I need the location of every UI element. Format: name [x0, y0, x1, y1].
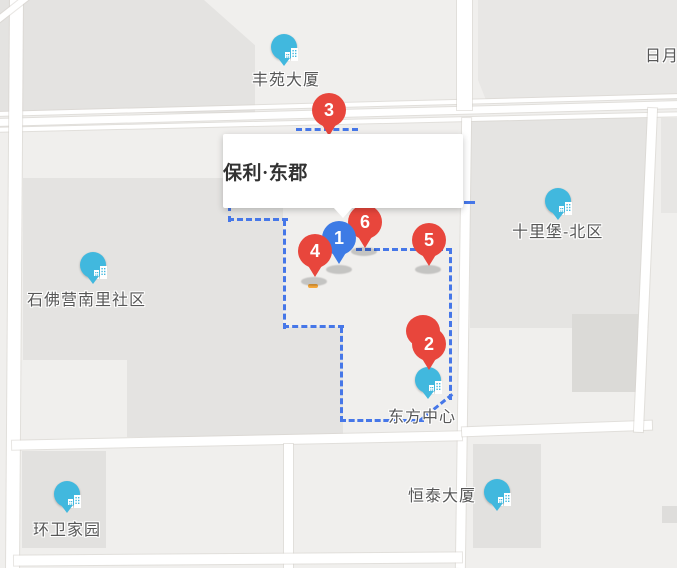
- poi-label-dongfang: 东方中心: [388, 403, 456, 427]
- road-center-vertical-top: [457, 0, 472, 110]
- poi-dongfang-center[interactable]: [415, 367, 441, 393]
- boundary-dash-jog: [283, 325, 344, 328]
- block-top-left: [0, 0, 255, 113]
- pin-number: 5: [424, 230, 434, 250]
- pin-number: 2: [424, 334, 434, 354]
- road-sw-vertical: [284, 444, 293, 568]
- boundary-dash-east: [449, 248, 452, 400]
- block-right-strip: [661, 118, 677, 213]
- road-south-east: [462, 421, 652, 437]
- poi-huanwei-homes[interactable]: [54, 481, 80, 507]
- info-window-title: 保利·东郡: [223, 158, 308, 185]
- block-mid-extension: [283, 327, 343, 437]
- pin-number: 1: [334, 228, 344, 248]
- pin-shadow: [351, 247, 377, 256]
- road-bottom: [14, 552, 462, 565]
- poi-label-hengtai: 恒泰大厦: [408, 482, 476, 506]
- pin-shadow: [301, 277, 327, 286]
- road-left-vertical: [6, 0, 23, 568]
- poi-label-shilipu: 十里堡-北区: [512, 218, 603, 242]
- poi-shilipu-north[interactable]: [545, 188, 571, 214]
- pin-number: 3: [324, 100, 334, 120]
- pin-shadow: [326, 265, 352, 274]
- block-mid-left-light: [23, 360, 127, 437]
- boundary-dash-west2: [340, 327, 343, 422]
- map-canvas[interactable]: 丰苑大厦 十里堡-北区 石佛营南里社区 东方中心 恒泰大厦 环卫家园 日月: [0, 0, 677, 568]
- edge-label-riyue: 日月: [645, 42, 677, 66]
- info-window[interactable]: 保利·东郡: [223, 134, 463, 208]
- poi-shifoying-community[interactable]: [80, 252, 106, 278]
- poi-fengyuan-building[interactable]: [271, 34, 297, 60]
- poi-label-huanwei: 环卫家园: [33, 516, 101, 540]
- marker-pin-3[interactable]: 3: [312, 93, 346, 127]
- boundary-dash-ne-stub: [464, 201, 475, 204]
- boundary-dash-w-top: [228, 218, 288, 221]
- poi-label-shifoying: 石佛营南里社区: [27, 286, 146, 310]
- poi-hengtai-building[interactable]: [484, 479, 510, 505]
- pin-shadow: [415, 265, 441, 274]
- pin-number: 6: [360, 212, 370, 232]
- poi-label-fengyuan: 丰苑大厦: [252, 66, 320, 90]
- pin-number: 4: [310, 241, 320, 261]
- marker-pin-2[interactable]: 2: [412, 327, 446, 361]
- marker-pin-4[interactable]: 4: [298, 234, 332, 268]
- block-se-small: [662, 506, 677, 523]
- block-dark-building: [572, 314, 638, 392]
- marker-pin-5[interactable]: 5: [412, 223, 446, 257]
- boundary-dash-west: [283, 220, 286, 329]
